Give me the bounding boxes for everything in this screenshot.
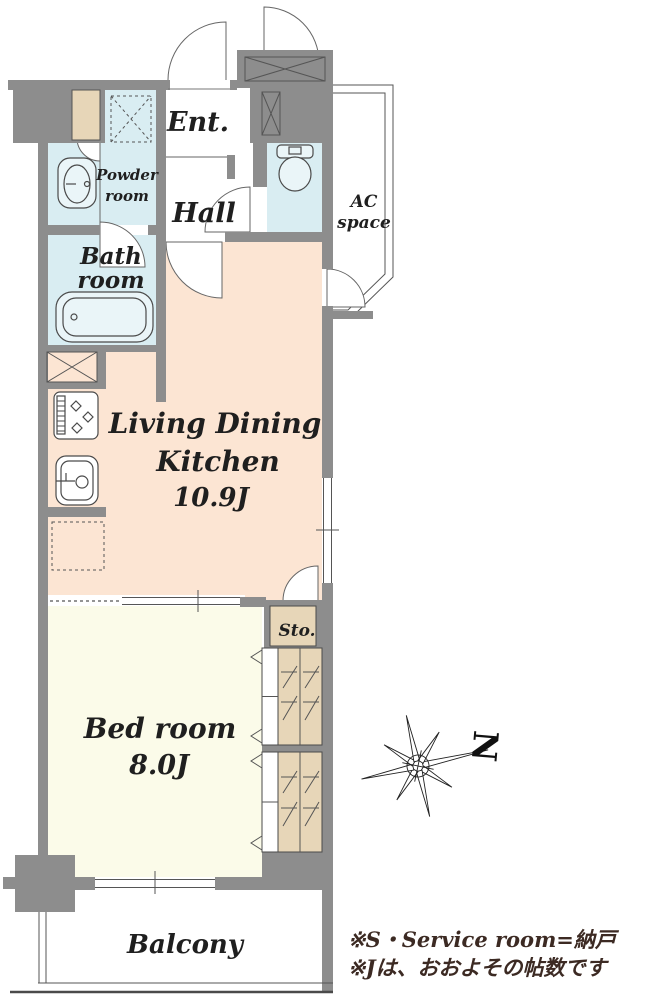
entrance-door-arc	[168, 22, 226, 80]
wall-segment	[230, 80, 237, 90]
stove-icon	[54, 392, 98, 439]
footnotes: ※S・Service room=納戸 ※Jは、おおよその帖数です	[348, 927, 620, 980]
footnote-service-room: ※S・Service room=納戸	[348, 927, 620, 952]
wall-segment	[227, 155, 235, 179]
bath-room-label-1: Bath	[79, 243, 142, 270]
washbasin-icon	[58, 158, 96, 208]
ac-space-label-2: space	[336, 213, 391, 233]
ac-space-label-1: AC	[349, 192, 378, 212]
structural-column	[15, 855, 75, 912]
bedroom-label: Bed room	[83, 712, 237, 745]
ldk-size-label: 10.9J	[173, 483, 250, 513]
wall-segment	[47, 382, 106, 389]
bath-room-label-2: room	[77, 267, 144, 294]
floor-plan-drawing: N Ent. Powder room Hall Bath room AC spa…	[0, 0, 653, 1000]
closet-1	[251, 648, 322, 745]
wall-segment	[3, 877, 15, 889]
wall-segment	[322, 583, 333, 890]
wall-segment	[240, 597, 266, 607]
wall-segment	[40, 345, 156, 352]
wall-segment	[322, 306, 333, 478]
wall-segment	[262, 852, 333, 890]
closet-2	[251, 752, 322, 852]
wall-segment	[38, 137, 48, 858]
utility-box	[72, 90, 100, 140]
balcony-label: Balcony	[126, 930, 245, 960]
wall-segment	[148, 225, 166, 235]
ldk-label-2: Kitchen	[155, 445, 279, 478]
wall-segment	[322, 890, 333, 993]
hall-label: Hall	[171, 198, 236, 229]
wall-segment	[40, 225, 100, 235]
storage-label: Sto.	[278, 621, 315, 641]
powder-room-label-2: room	[105, 187, 149, 205]
wall-segment	[225, 232, 333, 242]
bathtub-icon	[56, 292, 153, 342]
wall-segment	[156, 88, 166, 402]
balcony-left-rail	[39, 912, 46, 983]
wall-segment	[48, 507, 106, 517]
wall-segment	[333, 311, 373, 319]
wall-segment	[253, 143, 267, 187]
powder-room-label-1: Powder	[95, 166, 159, 184]
toilet-icon	[277, 145, 313, 191]
floor-plan: N Ent. Powder room Hall Bath room AC spa…	[0, 0, 653, 1000]
ac-service-door-arc	[327, 269, 365, 307]
entrance-label: Ent.	[166, 107, 229, 138]
ldk-label-1: Living Dining	[108, 407, 322, 440]
north-label: N	[463, 729, 506, 763]
bedroom-size-label: 8.0J	[128, 750, 191, 781]
wall-segment	[75, 878, 97, 888]
compass-rose: N	[350, 699, 505, 830]
wall-segment	[215, 877, 262, 890]
kitchen-sink-icon	[56, 456, 98, 505]
footnote-tatami: ※Jは、おおよその帖数です	[348, 955, 610, 980]
wall-segment	[262, 745, 322, 752]
